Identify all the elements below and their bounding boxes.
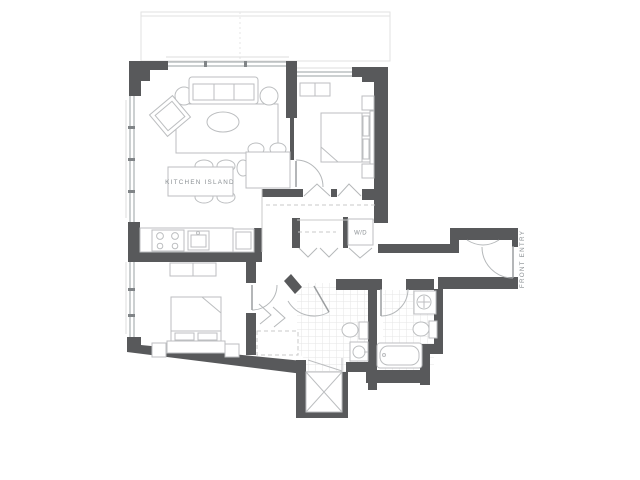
wall-segment <box>458 228 518 240</box>
closet-shelf-dashed <box>257 331 298 355</box>
window-mullion <box>204 61 207 67</box>
stove-outline <box>152 230 184 251</box>
wall-segment <box>246 262 256 283</box>
bifold-door <box>273 307 285 327</box>
toilet-tank <box>359 322 368 339</box>
wall-segment <box>343 217 348 248</box>
door-swing-arc <box>296 160 323 187</box>
bedroom-1-door <box>296 160 323 187</box>
window-mullion <box>128 190 135 193</box>
refrigerator <box>233 229 254 252</box>
wall-segment <box>262 189 303 197</box>
bifold-door <box>338 184 361 196</box>
entry-closet-arc <box>467 240 499 245</box>
wall-segment <box>336 279 370 290</box>
kitchen-island-group: KITCHEN ISLAND <box>165 160 235 203</box>
wall-segment <box>128 252 262 262</box>
nightstand <box>225 344 239 357</box>
wall-segment <box>254 228 262 262</box>
wall-segment <box>377 279 382 290</box>
bedroom-2-door <box>252 285 277 310</box>
nightstand <box>152 343 166 357</box>
window-top-living <box>168 62 286 66</box>
bed <box>321 111 374 164</box>
wall-segment <box>296 360 306 418</box>
bedroom-1 <box>300 83 374 178</box>
wall-segment <box>352 67 375 82</box>
entry-door <box>467 240 513 278</box>
stove <box>152 230 184 251</box>
sofa <box>189 77 258 104</box>
wall-segment <box>366 370 426 383</box>
bathroom-sink <box>350 342 368 361</box>
window-mullion <box>128 158 135 161</box>
wall-segment <box>129 61 168 96</box>
window-left-lower <box>130 262 134 337</box>
window-mullion <box>128 126 135 129</box>
door-swing-arc <box>252 285 277 310</box>
toilet-bowl <box>342 323 358 337</box>
wall-segment <box>362 189 374 200</box>
front-entry: FRONT ENTRY <box>519 230 526 288</box>
nightstand <box>362 164 374 178</box>
toilet-bowl <box>413 322 429 336</box>
toilet-tank <box>429 321 437 338</box>
wall-segment <box>450 228 459 253</box>
bifold-door <box>349 248 372 258</box>
washer-dryer-label: W/D <box>354 231 367 237</box>
front-entry-label: FRONT ENTRY <box>519 230 526 288</box>
hall-angled-closet <box>257 304 298 355</box>
wall-segment <box>346 362 368 372</box>
bifold-door <box>299 248 317 257</box>
living-room: KITCHEN ISLAND <box>150 77 290 203</box>
wall-segment <box>246 313 256 355</box>
wall-segment <box>512 240 518 247</box>
bathroom-sink <box>414 291 436 314</box>
bathtub <box>377 343 422 368</box>
dining-table <box>246 152 290 188</box>
wall-segment <box>286 61 297 118</box>
window-mullion <box>244 61 247 67</box>
coffee-table <box>207 112 239 132</box>
bifold-door <box>304 184 330 196</box>
nightstand <box>362 96 374 110</box>
wall-segment <box>292 218 300 248</box>
kitchen-island-label: KITCHEN ISLAND <box>165 179 235 186</box>
wall-segment <box>331 189 337 197</box>
bed-headboard <box>167 341 225 353</box>
bifold-door <box>320 248 338 257</box>
wall-segment <box>374 67 388 223</box>
window-mullion <box>128 288 135 291</box>
window-mullion <box>128 314 135 317</box>
side-table <box>260 87 278 105</box>
laundry-closet: W/D <box>348 219 373 258</box>
bedroom-2 <box>152 263 239 357</box>
kitchen-sink <box>188 231 209 250</box>
floor-plan-page: KITCHEN ISLAND <box>0 0 640 480</box>
balcony-edge <box>141 12 390 61</box>
floor-plan-canvas: KITCHEN ISLAND <box>0 0 640 480</box>
wall-segment <box>290 118 294 160</box>
wall-segment <box>284 274 302 294</box>
window-top-bedroom <box>297 72 352 76</box>
kitchen <box>140 228 254 252</box>
wall-segment <box>438 277 518 289</box>
bed-headboard <box>370 111 374 164</box>
door-swing-arc <box>482 247 513 278</box>
wall-segment <box>378 244 452 253</box>
wall-segment <box>406 279 434 290</box>
bed <box>167 297 225 353</box>
balcony-outline <box>141 12 390 61</box>
